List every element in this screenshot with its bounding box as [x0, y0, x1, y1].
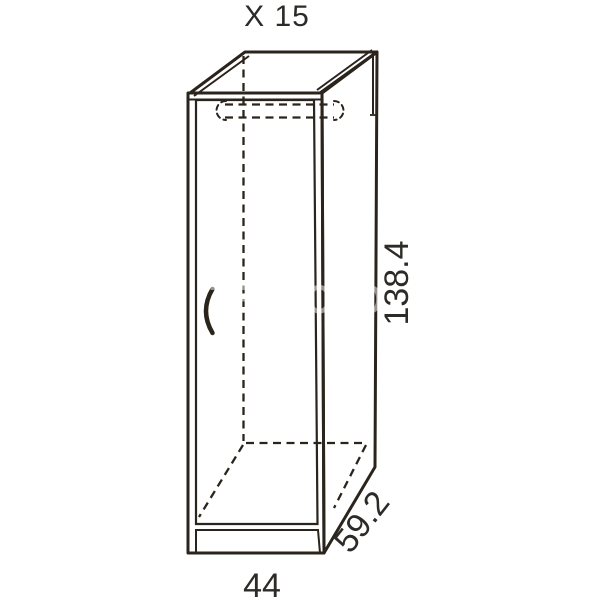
width-dimension-label: 44 [212, 568, 312, 600]
door-handle-icon [206, 289, 213, 333]
top-right-edge-line [317, 50, 372, 90]
wardrobe-diagram: TEKPOLOD X 15 138.4 59.2 44 [0, 0, 600, 600]
wardrobe-drawing [0, 0, 600, 600]
rail-left-bracket-icon [217, 101, 227, 120]
plinth [196, 530, 320, 553]
top-left-edge-line [194, 56, 249, 96]
hidden-bottom-left-edge [199, 445, 243, 517]
door-panel [196, 100, 318, 524]
height-dimension-label: 138.4 [379, 213, 415, 353]
rail-right-bracket-icon [334, 101, 344, 120]
model-title: X 15 [177, 0, 377, 34]
side-face [322, 52, 377, 553]
